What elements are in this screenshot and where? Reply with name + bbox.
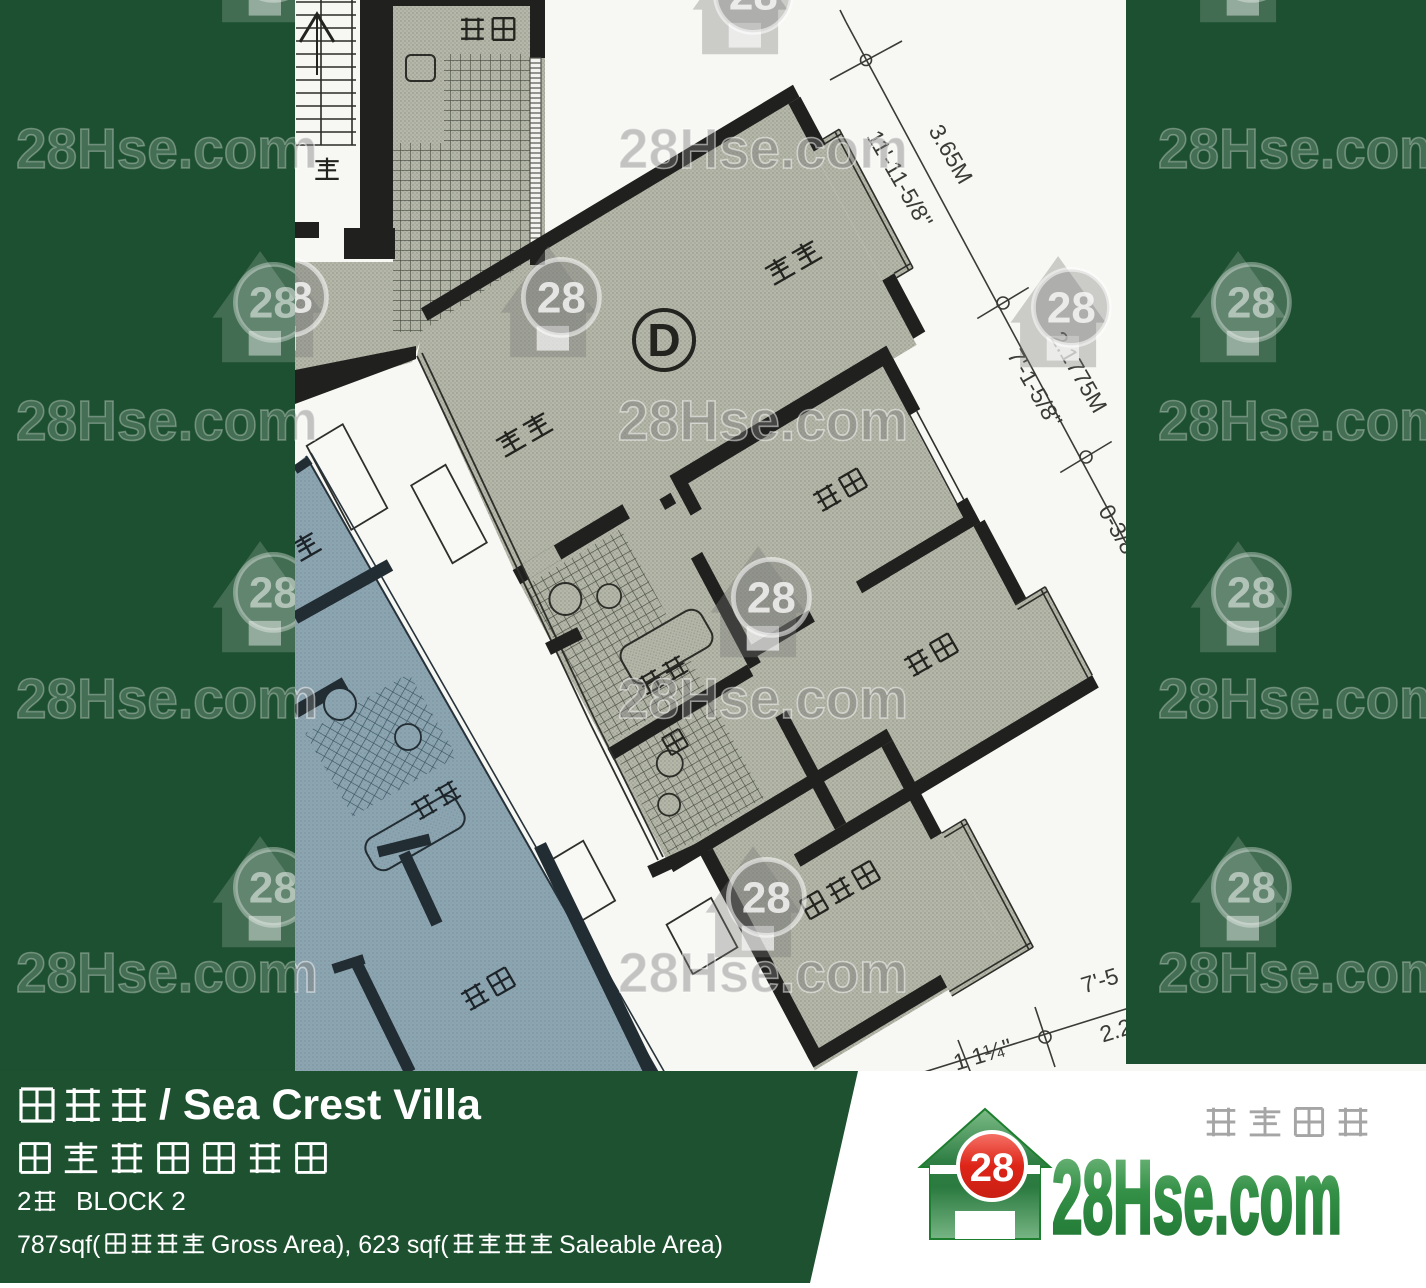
svg-text:28Hse.com: 28Hse.com bbox=[618, 117, 908, 181]
svg-text:28: 28 bbox=[1227, 569, 1276, 618]
svg-text:2: 2 bbox=[17, 1186, 31, 1216]
svg-text:28: 28 bbox=[249, 279, 295, 328]
svg-text:28: 28 bbox=[729, 0, 778, 20]
svg-text:28Hse.com: 28Hse.com bbox=[618, 667, 908, 731]
svg-text:28Hse.com: 28Hse.com bbox=[16, 941, 295, 1005]
svg-text:28: 28 bbox=[1227, 864, 1276, 913]
svg-text:28: 28 bbox=[747, 574, 796, 623]
svg-text:28Hse.com: 28Hse.com bbox=[1158, 667, 1426, 731]
svg-text:28: 28 bbox=[970, 1146, 1015, 1190]
svg-text:28Hse.com: 28Hse.com bbox=[1158, 117, 1426, 181]
svg-text:28Hse.com: 28Hse.com bbox=[618, 389, 908, 453]
svg-text:28Hse.com: 28Hse.com bbox=[16, 667, 295, 731]
svg-text:787sqf(: 787sqf( bbox=[17, 1231, 101, 1259]
svg-text:28Hse.com: 28Hse.com bbox=[1158, 941, 1426, 1005]
svg-text:Gross Area), 623 sqf(: Gross Area), 623 sqf( bbox=[211, 1231, 449, 1259]
svg-text:28: 28 bbox=[1047, 284, 1096, 333]
svg-text:28Hse.com: 28Hse.com bbox=[16, 117, 295, 181]
svg-text:28Hse.com: 28Hse.com bbox=[1158, 389, 1426, 453]
svg-text:/ Sea Crest Villa: / Sea Crest Villa bbox=[159, 1081, 482, 1129]
svg-text:28: 28 bbox=[537, 274, 586, 323]
svg-text:D: D bbox=[647, 314, 680, 366]
svg-text:28: 28 bbox=[742, 874, 791, 923]
svg-text:28Hse.com: 28Hse.com bbox=[1052, 1140, 1342, 1256]
svg-text:28: 28 bbox=[1227, 279, 1276, 328]
svg-text:Saleable Area): Saleable Area) bbox=[559, 1231, 723, 1259]
svg-text:28: 28 bbox=[249, 569, 295, 618]
svg-text:28Hse.com: 28Hse.com bbox=[16, 389, 295, 453]
svg-text:28: 28 bbox=[249, 864, 295, 913]
svg-text:BLOCK 2: BLOCK 2 bbox=[76, 1186, 186, 1216]
